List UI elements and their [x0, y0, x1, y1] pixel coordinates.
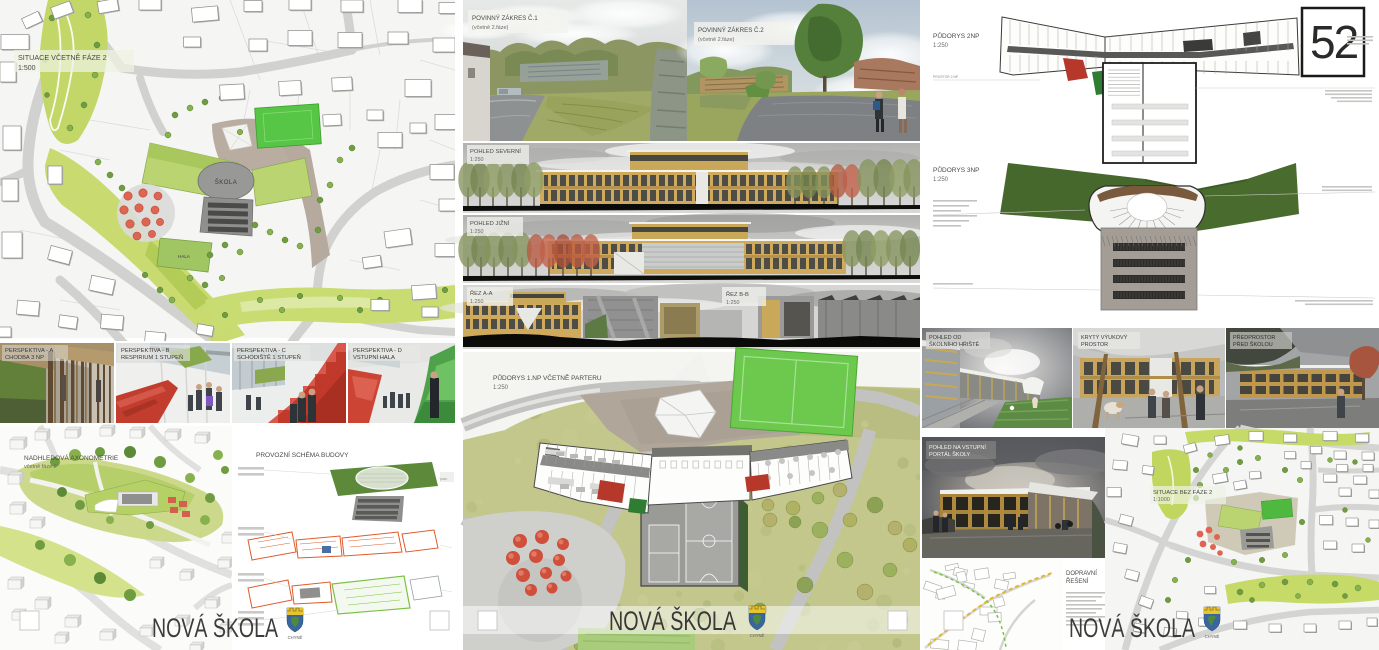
svg-text:NADHLEDOVÁ AXONOMETRIE: NADHLEDOVÁ AXONOMETRIE	[24, 453, 119, 462]
svg-text:ŘEZ B-B: ŘEZ B-B	[726, 290, 749, 298]
svg-text:CHYNĚ: CHYNĚ	[750, 633, 765, 638]
svg-text:PROVOZNÍ SCHÉMA BUDOVY: PROVOZNÍ SCHÉMA BUDOVY	[256, 450, 349, 459]
svg-text:PROSTOR 2.NP: PROSTOR 2.NP	[933, 75, 959, 79]
svg-text:PORTÁL ŠKOLY: PORTÁL ŠKOLY	[929, 451, 970, 458]
svg-text:1:250: 1:250	[470, 157, 484, 163]
svg-text:PERSPEKTIVA - B: PERSPEKTIVA - B	[121, 348, 170, 354]
svg-text:PROSTOR: PROSTOR	[1081, 342, 1108, 348]
svg-text:1:250: 1:250	[933, 43, 949, 49]
svg-text:PŮDORYS 2NP: PŮDORYS 2NP	[933, 31, 979, 40]
svg-text:PŘEDPROSTOR: PŘEDPROSTOR	[1233, 333, 1275, 341]
svg-text:1:250: 1:250	[726, 300, 740, 306]
svg-text:1:250: 1:250	[470, 229, 484, 235]
svg-text:VSTUPNÍ HALA: VSTUPNÍ HALA	[353, 354, 395, 361]
svg-text:CHYNĚ: CHYNĚ	[288, 635, 303, 640]
svg-text:POHLED SEVERNÍ: POHLED SEVERNÍ	[470, 148, 521, 155]
svg-text:POHLED JIŽNÍ: POHLED JIŽNÍ	[470, 219, 510, 227]
svg-text:PŮDORYS 1.NP VČETNĚ PARTERU: PŮDORYS 1.NP VČETNĚ PARTERU	[493, 373, 602, 382]
svg-text:SITUACE BEZ FÁZE 2: SITUACE BEZ FÁZE 2	[1153, 489, 1212, 496]
svg-text:PERSPEKTIVA - D: PERSPEKTIVA - D	[353, 348, 402, 354]
svg-text:(včetně 2.fáze): (včetně 2.fáze)	[698, 37, 735, 43]
svg-text:POHLED NA VSTUPNÍ: POHLED NA VSTUPNÍ	[929, 444, 986, 451]
svg-text:NOVÁ ŠKOLA: NOVÁ ŠKOLA	[1069, 612, 1195, 643]
svg-text:CHODBA 3 NP: CHODBA 3 NP	[5, 355, 44, 361]
svg-text:NOVÁ ŠKOLA: NOVÁ ŠKOLA	[609, 605, 736, 636]
svg-text:POVINNÝ ZÁKRES Č.1: POVINNÝ ZÁKRES Č.1	[472, 15, 538, 22]
svg-text:1:250: 1:250	[470, 299, 484, 305]
svg-text:PERSPEKTIVA - A: PERSPEKTIVA - A	[5, 348, 53, 354]
svg-text:RESPIRIUM 1 STUPEŇ: RESPIRIUM 1 STUPEŇ	[121, 354, 183, 361]
svg-text:ŘEŠENÍ: ŘEŠENÍ	[1066, 577, 1089, 585]
svg-text:(včetně 2.fáze): (včetně 2.fáze)	[472, 25, 509, 31]
svg-text:PŮDORYS 3NP: PŮDORYS 3NP	[933, 165, 979, 174]
svg-text:CHYNĚ: CHYNĚ	[1205, 634, 1220, 639]
svg-text:ŠKOLA: ŠKOLA	[215, 179, 238, 186]
svg-text:1:500: 1:500	[18, 65, 36, 72]
svg-text:včetně fáze 2: včetně fáze 2	[24, 464, 57, 470]
svg-text:1:250: 1:250	[493, 385, 509, 391]
svg-text:1:1000: 1:1000	[1153, 497, 1170, 503]
svg-text:52: 52	[1310, 16, 1358, 68]
svg-text:1:250: 1:250	[933, 177, 949, 183]
svg-text:POHLED OD: POHLED OD	[929, 335, 961, 341]
svg-text:pozn.: pozn.	[440, 477, 448, 481]
svg-text:PERSPEKTIVA - C: PERSPEKTIVA - C	[237, 348, 286, 354]
svg-text:PŘED ŠKOLOU: PŘED ŠKOLOU	[1233, 340, 1273, 348]
svg-text:ŘEZ A-A: ŘEZ A-A	[470, 289, 493, 297]
svg-text:HALA: HALA	[178, 254, 190, 259]
svg-text:SITUACE VČETNĚ FÁZE 2: SITUACE VČETNĚ FÁZE 2	[18, 53, 107, 62]
svg-text:ŠKOLNÍHO HŘIŠTĚ: ŠKOLNÍHO HŘIŠTĚ	[929, 340, 979, 348]
svg-text:POVINNÝ ZÁKRES Č.2: POVINNÝ ZÁKRES Č.2	[698, 27, 764, 34]
svg-text:NOVÁ ŠKOLA: NOVÁ ŠKOLA	[152, 612, 278, 643]
svg-text:SCHODIŠTĚ 1 STUPEŇ: SCHODIŠTĚ 1 STUPEŇ	[237, 353, 301, 361]
svg-text:DOPRAVNÍ: DOPRAVNÍ	[1066, 570, 1097, 577]
svg-text:KRYTÝ VÝUKOVÝ: KRYTÝ VÝUKOVÝ	[1081, 334, 1128, 341]
